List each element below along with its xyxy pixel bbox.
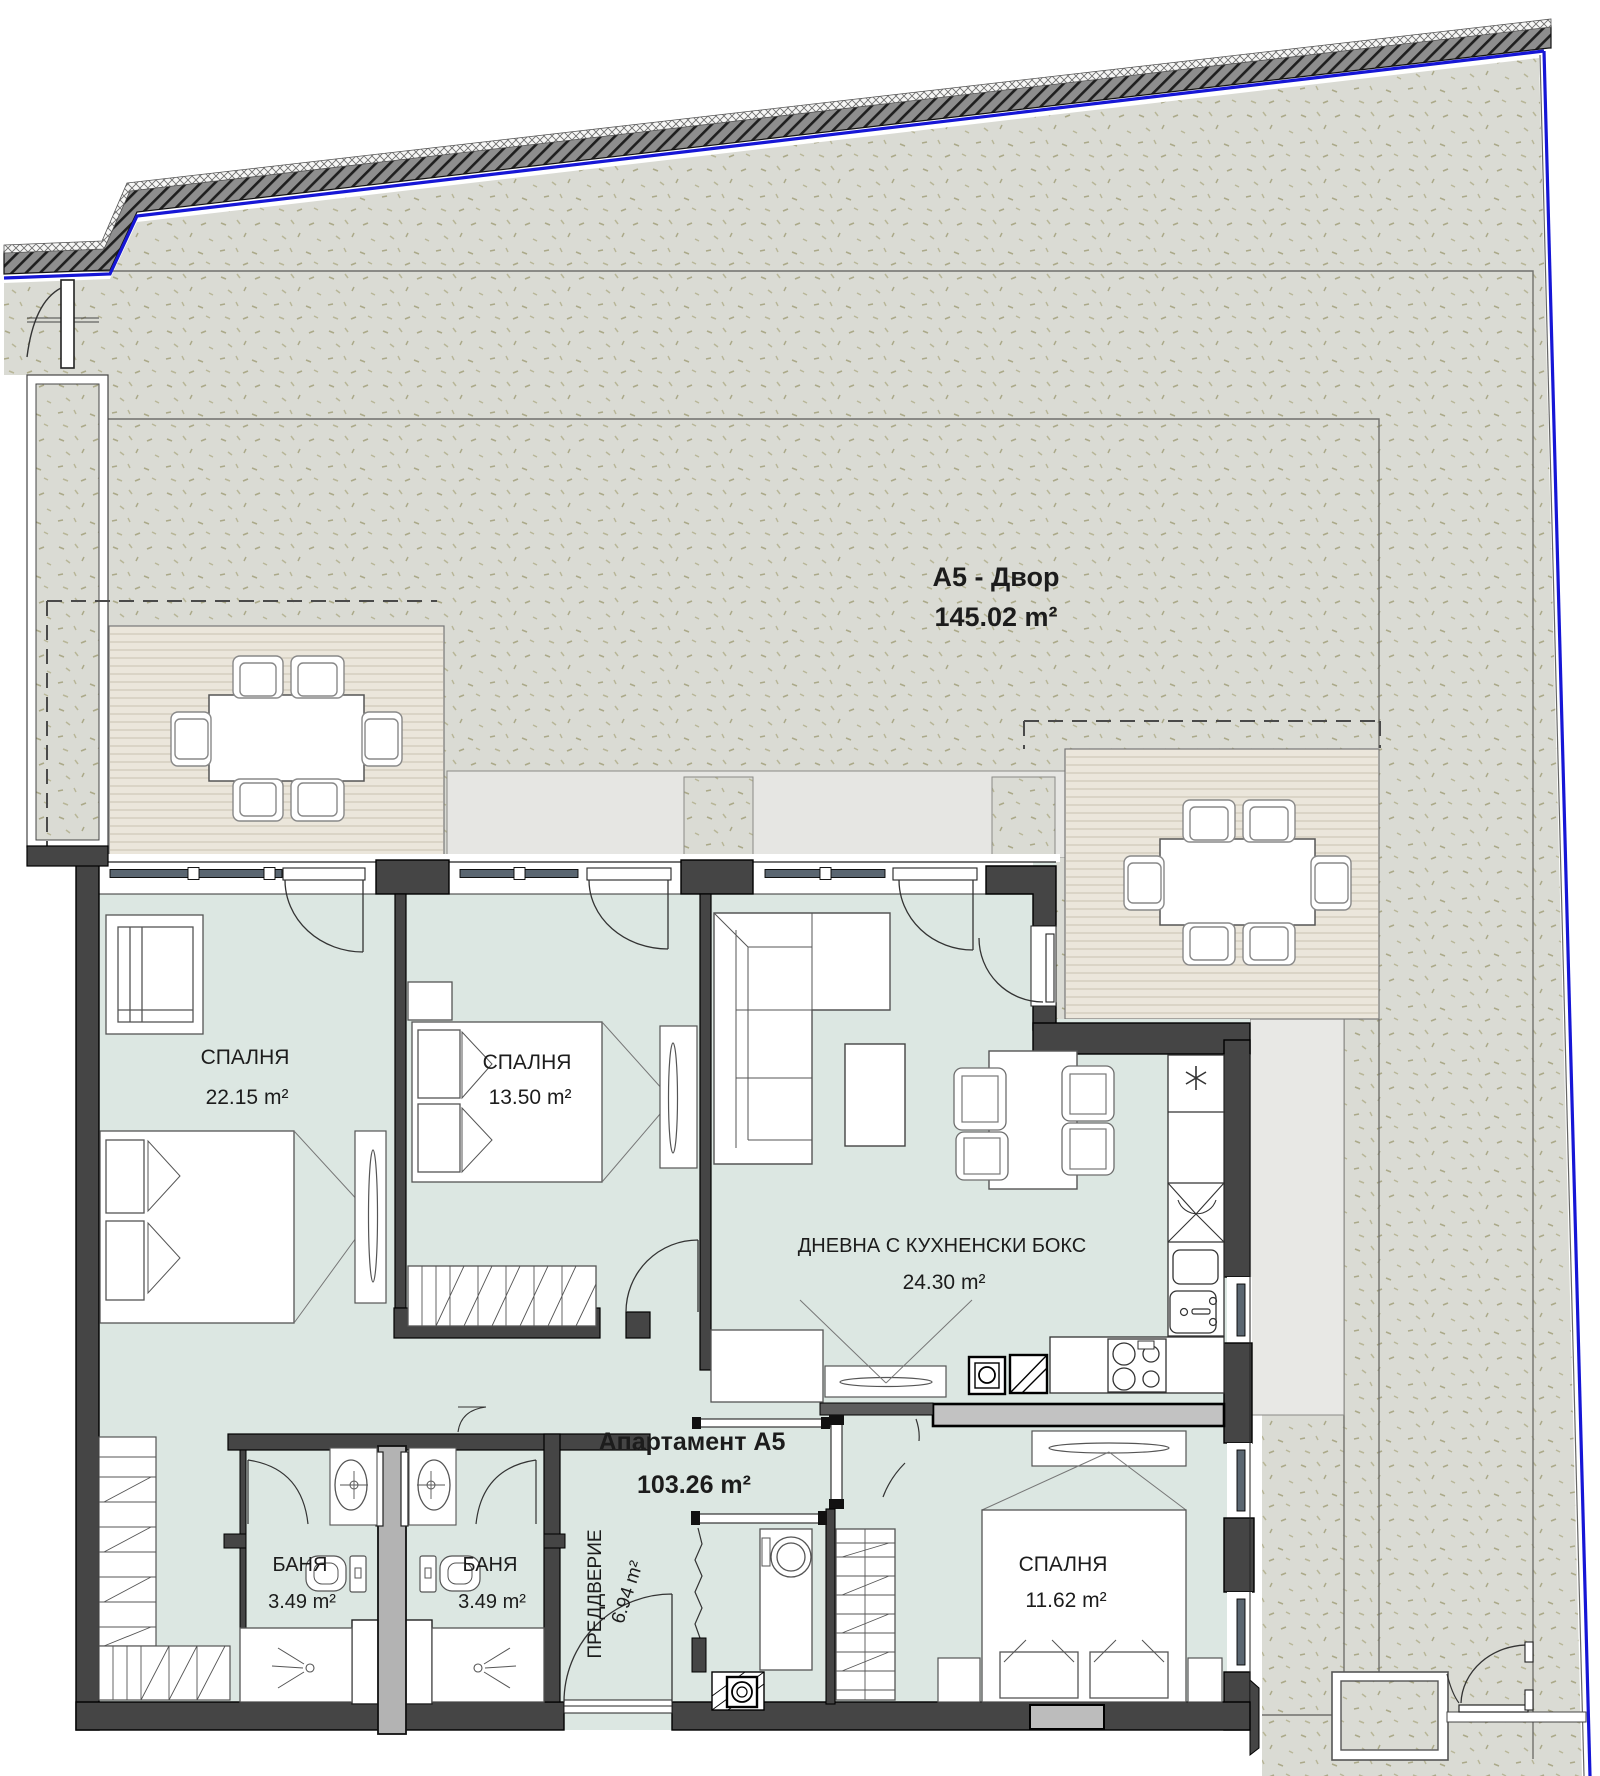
svg-text:11.62 m²: 11.62 m²: [1025, 1589, 1106, 1612]
svg-text:24.30 m²: 24.30 m²: [903, 1271, 986, 1294]
svg-text:А5 - Двор: А5 - Двор: [933, 562, 1060, 592]
svg-text:БАНЯ: БАНЯ: [463, 1554, 518, 1576]
svg-text:22.15 m²: 22.15 m²: [206, 1086, 289, 1109]
svg-text:103.26 m²: 103.26 m²: [637, 1471, 751, 1499]
svg-text:БАНЯ: БАНЯ: [273, 1554, 328, 1576]
svg-text:13.50 m²: 13.50 m²: [489, 1086, 572, 1109]
svg-text:СПАЛНЯ: СПАЛНЯ: [201, 1046, 290, 1069]
svg-text:3.49 m²: 3.49 m²: [268, 1591, 336, 1613]
svg-text:145.02 m²: 145.02 m²: [934, 602, 1057, 632]
svg-text:3.49 m²: 3.49 m²: [458, 1591, 526, 1613]
svg-text:Апартамент А5: Апартамент А5: [599, 1428, 786, 1456]
svg-text:СПАЛНЯ: СПАЛНЯ: [1019, 1553, 1108, 1576]
svg-text:ДНЕВНА С КУХНЕНСКИ БОКС: ДНЕВНА С КУХНЕНСКИ БОКС: [798, 1235, 1087, 1257]
svg-text:ПРЕДДВЕРИЕ: ПРЕДДВЕРИЕ: [585, 1529, 606, 1658]
svg-text:СПАЛНЯ: СПАЛНЯ: [483, 1051, 572, 1074]
